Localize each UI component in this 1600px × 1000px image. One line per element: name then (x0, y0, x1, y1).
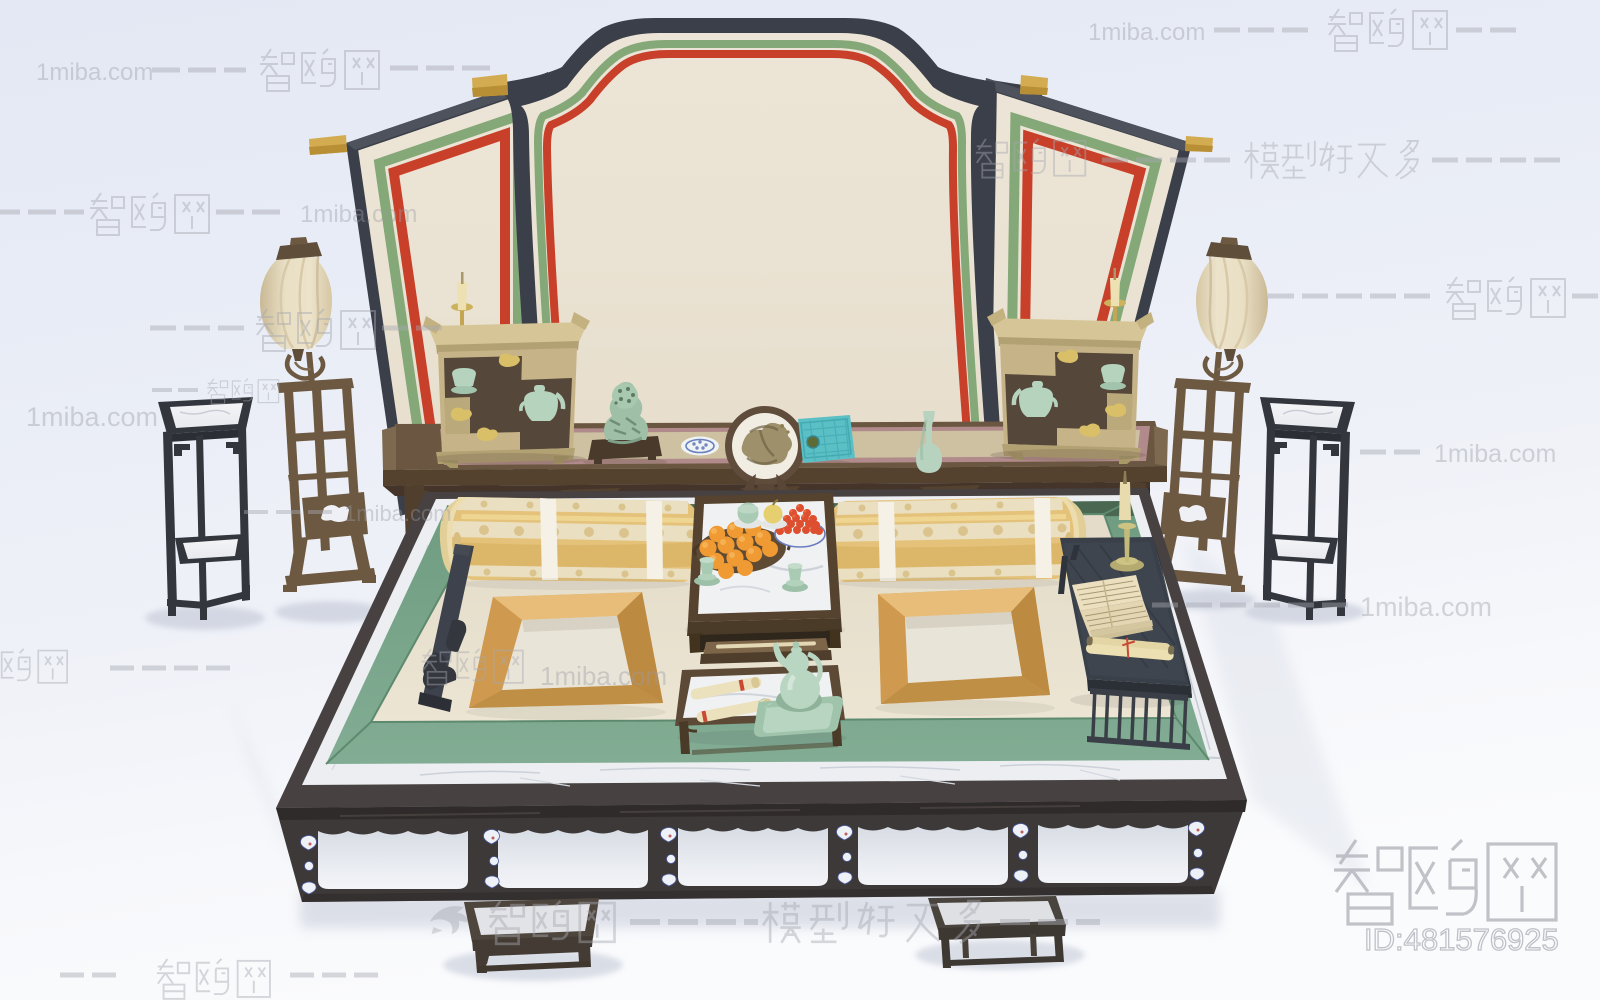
svg-text:1miba.com: 1miba.com (344, 501, 452, 526)
svg-text:1miba.com: 1miba.com (1434, 440, 1556, 468)
svg-text:1miba.com: 1miba.com (540, 661, 667, 691)
svg-text:1miba.com: 1miba.com (1088, 19, 1205, 46)
svg-text:1miba.com: 1miba.com (26, 402, 158, 432)
svg-text:1miba.com: 1miba.com (1360, 592, 1492, 622)
svg-text:1miba.com: 1miba.com (300, 201, 417, 228)
svg-text:ID:481576925: ID:481576925 (1364, 922, 1559, 957)
svg-text:1miba.com: 1miba.com (36, 59, 153, 86)
